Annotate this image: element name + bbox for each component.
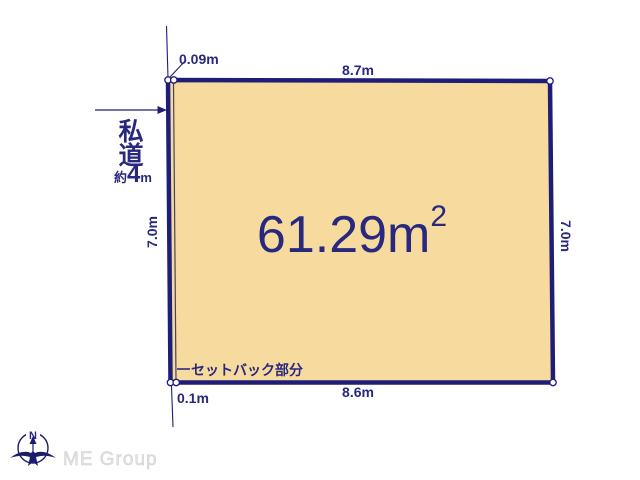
area-exponent: 2 [430, 200, 447, 233]
right-edge-dimension-label: 7.0m [558, 220, 574, 252]
area-label: 61.29m2 [257, 200, 447, 264]
left-edge-dimension-label: 7.0m [144, 216, 160, 248]
survey-point-bottom-left-setback [173, 379, 179, 385]
land-plot-diagram: 0.09m 8.7m 8.6m 7.0m 7.0m 0.1m 61.29m2 セ… [0, 0, 640, 480]
watermark-logo-text: ME Group [63, 449, 158, 470]
road-width-value: 4 [127, 161, 141, 188]
road-width-unit: m [140, 170, 152, 185]
top-offset-label: 0.09m [179, 51, 219, 67]
survey-point-bottom-right [550, 379, 556, 385]
bird-icon [10, 452, 56, 467]
compass-logo: N [10, 428, 56, 466]
bottom-edge-dimension-label: 8.6m [342, 384, 374, 400]
survey-line-top-extension [167, 26, 169, 78]
survey-point-top-right [547, 78, 553, 84]
area-value: 61.29m [257, 206, 430, 264]
road-arrow-head-icon [158, 106, 168, 114]
road-arrow [95, 106, 167, 114]
diagram-canvas: 0.09m 8.7m 8.6m 7.0m 7.0m 0.1m 61.29m2 セ… [0, 0, 640, 480]
private-road-label: 私 道 約4m [114, 118, 152, 188]
setback-label: セットバック部分 [191, 362, 303, 378]
road-width-prefix: 約 [114, 170, 127, 185]
survey-point-top-left-setback [171, 77, 177, 83]
survey-line-bottom-extension [172, 386, 174, 427]
top-edge-dimension-label: 8.7m [342, 62, 374, 78]
bottom-offset-label: 0.1m [177, 390, 209, 406]
